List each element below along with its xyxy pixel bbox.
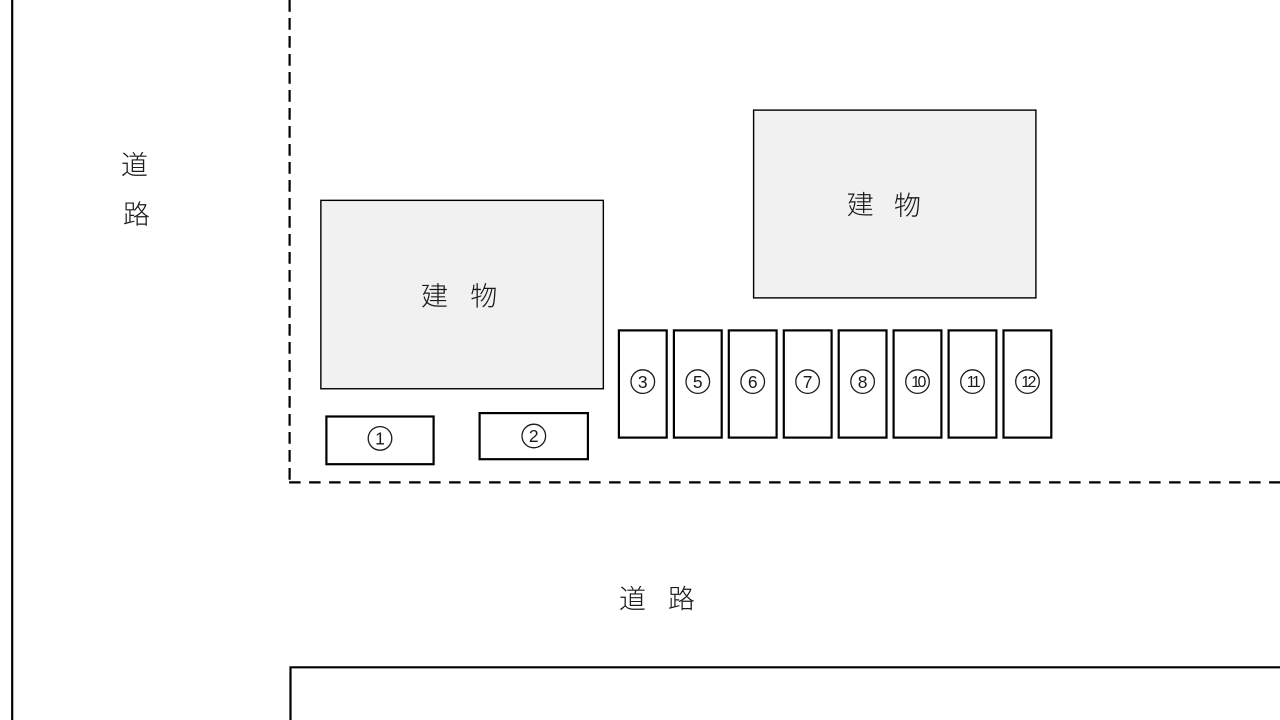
svg-text:6: 6	[748, 372, 758, 392]
svg-text:3: 3	[638, 372, 648, 392]
svg-text:5: 5	[693, 372, 703, 392]
svg-text:8: 8	[858, 372, 868, 392]
svg-text:1: 1	[375, 429, 385, 449]
svg-text:2: 2	[529, 426, 539, 446]
svg-text:7: 7	[803, 372, 813, 392]
